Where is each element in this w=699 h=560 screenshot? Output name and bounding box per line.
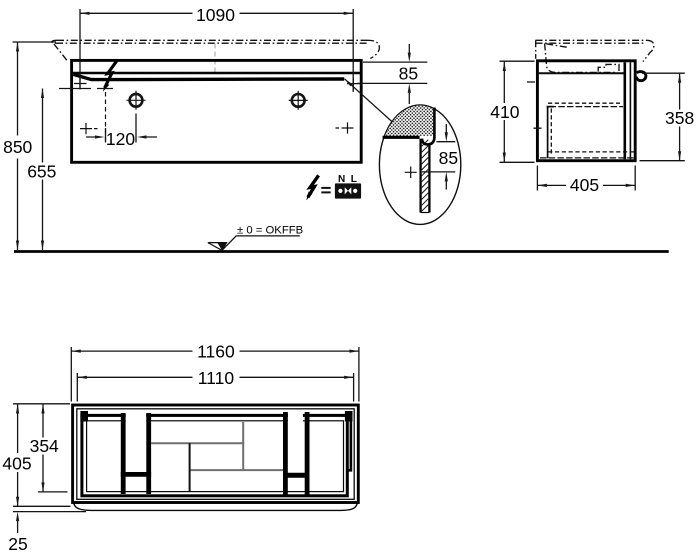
svg-text:85: 85 [439,148,458,168]
svg-text:358: 358 [665,108,694,128]
svg-text:25: 25 [8,534,27,554]
svg-text:120: 120 [106,129,135,149]
svg-text:1160: 1160 [197,341,235,361]
svg-text:1110: 1110 [198,368,235,388]
svg-text:± 0 = OKFFB: ± 0 = OKFFB [237,224,303,236]
svg-text:1090: 1090 [196,5,235,25]
svg-text:405: 405 [2,453,31,473]
svg-text:410: 410 [490,102,519,122]
svg-text:850: 850 [3,137,32,157]
svg-text:354: 354 [30,436,59,456]
svg-text:405: 405 [570,175,599,195]
svg-text:85: 85 [399,63,418,83]
svg-text:655: 655 [27,161,56,181]
